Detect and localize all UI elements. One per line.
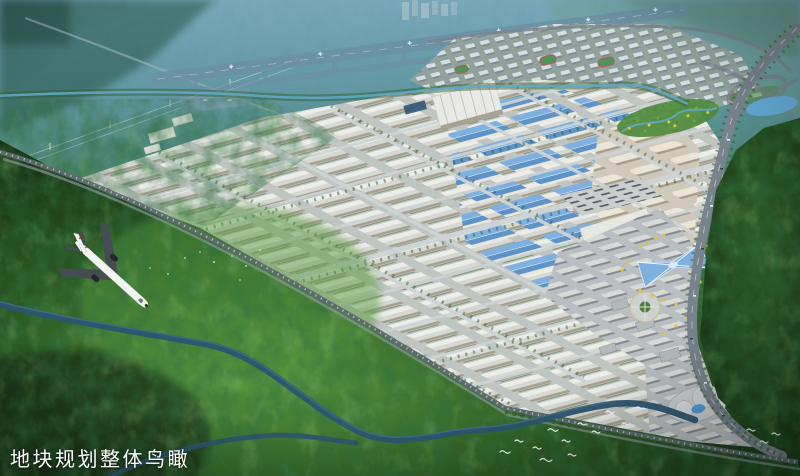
vignette	[0, 0, 800, 476]
caption-title: 地块规划整体鸟瞰	[10, 443, 190, 472]
aerial-masterplan-rendering: 地块规划整体鸟瞰	[0, 0, 800, 476]
scene-artwork	[0, 0, 800, 476]
